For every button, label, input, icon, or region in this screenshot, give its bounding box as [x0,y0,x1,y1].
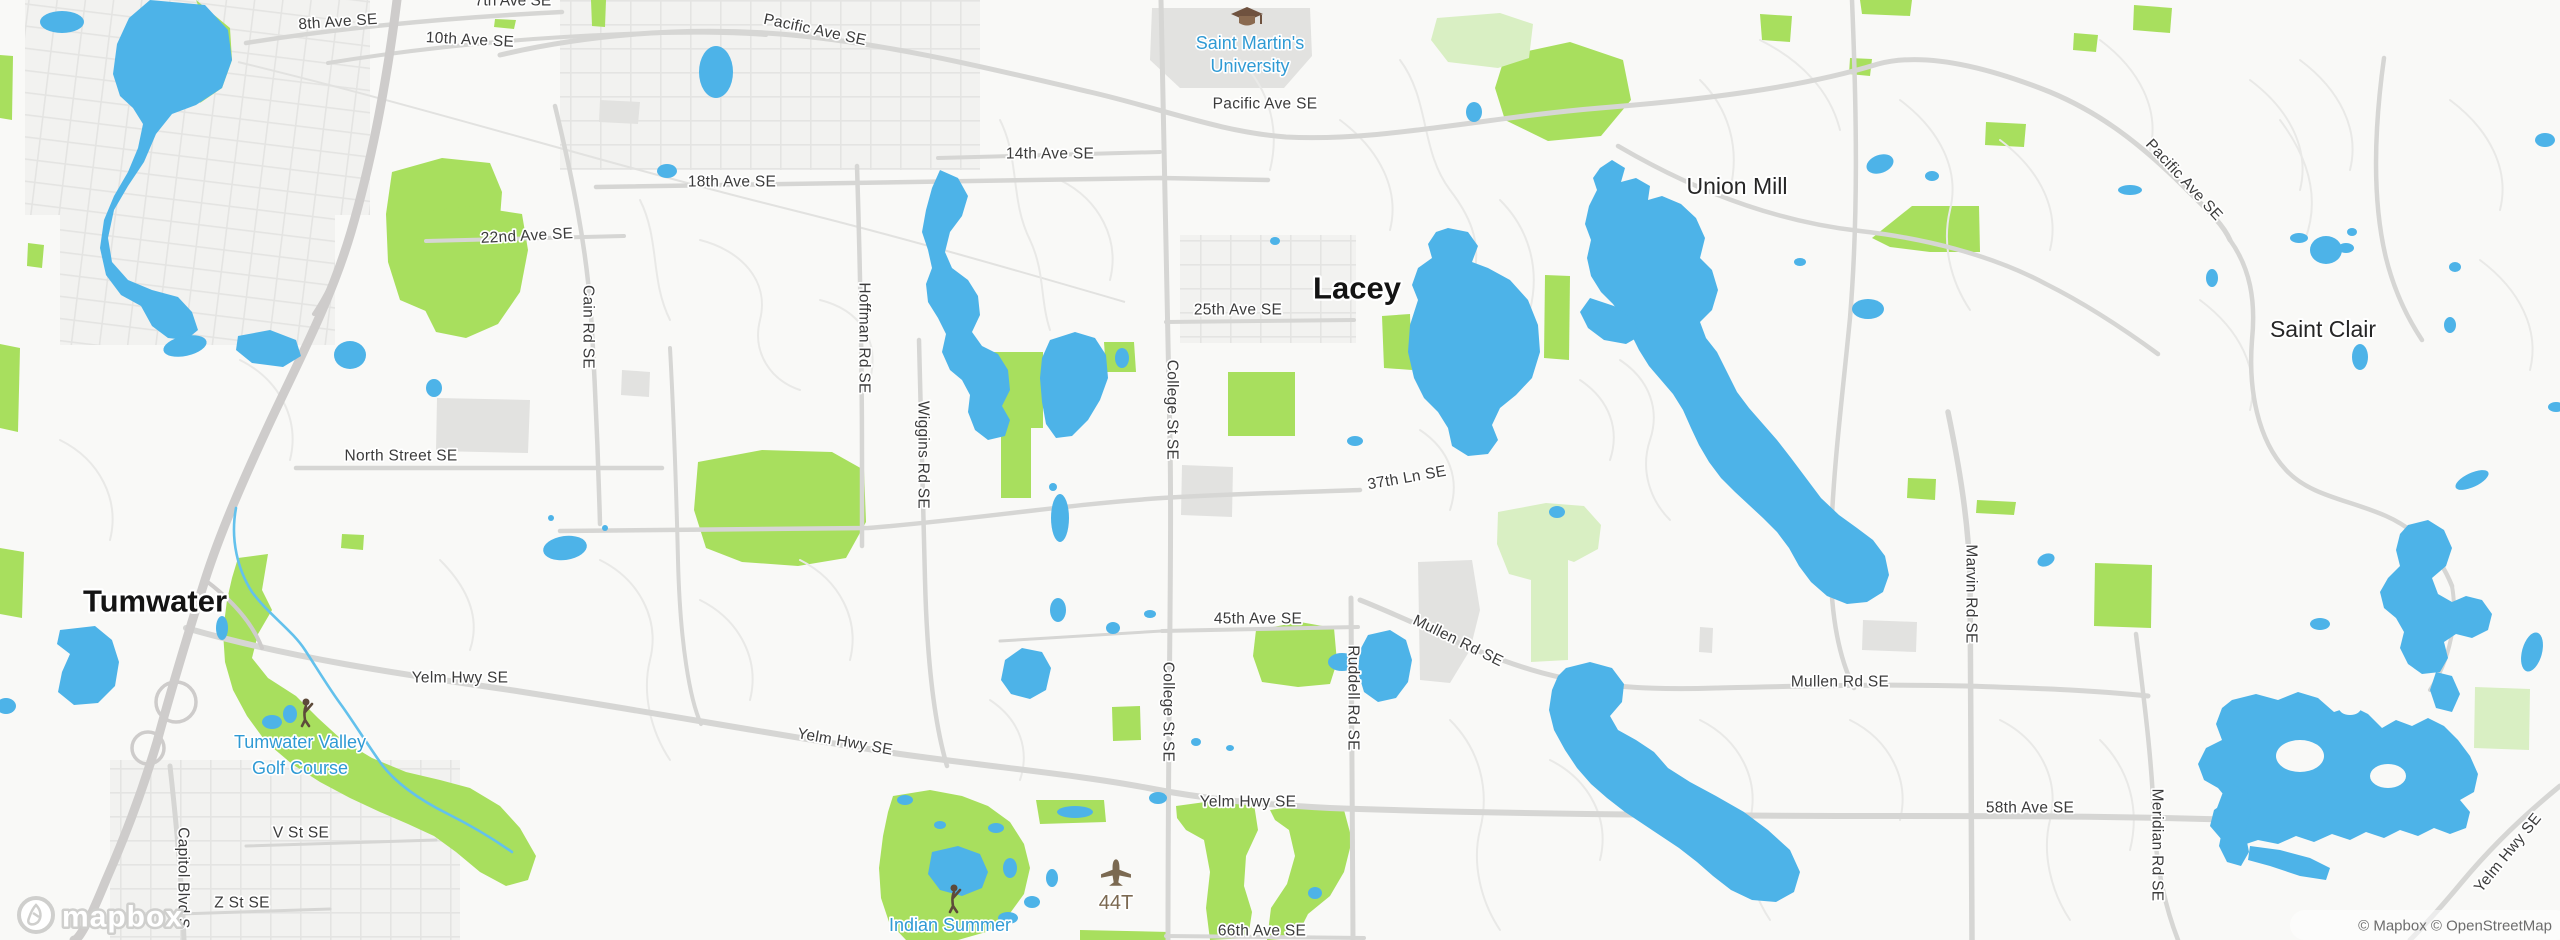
map-label-fiftyeighth-ave-se: 58th Ave SE [1986,800,2074,817]
map-label-twentyfifth-ave-se: 25th Ave SE [1194,302,1282,319]
map-label-union-mill: Union Mill [1687,173,1788,199]
map-viewport[interactable]: 7th Ave SE8th Ave SE10th Ave SEPacific A… [0,0,2560,940]
map-label-v-st-se: V St SE [273,825,329,842]
map-label-wiggins-rd-se: Wiggins Rd SE [915,401,932,509]
map-label-line: Saint Martin's [1196,33,1304,53]
map-label-north-street-se: North Street SE [344,448,457,465]
map-label-mullen-rd-se-east: Mullen Rd SE [1791,674,1889,691]
map-label-meridian-rd-se: Meridian Rd SE [2149,789,2166,902]
map-label-cain-rd-se: Cain Rd SE [580,285,597,369]
mapbox-wordmark: mapbox [62,901,183,934]
map-label-line: Tumwater Valley [234,732,366,752]
map-canvas[interactable]: 7th Ave SE8th Ave SE10th Ave SEPacific A… [0,0,2560,940]
map-label-yelm-hwy-se-west: Yelm Hwy SE [412,670,509,687]
map-label-line: University [1210,56,1289,76]
map-label-college-st-se-south: College St SE [1160,662,1177,762]
map-label-ruddell-rd-se: Ruddell Rd SE [1345,645,1362,751]
map-label-line: Golf Course [252,758,348,778]
map-label-tumwater: Tumwater [83,584,227,619]
map-label-indian-summer: Indian Summer [889,915,1011,935]
map-label-z-st-se: Z St SE [214,895,270,912]
attribution-bar[interactable]: © Mapbox © OpenStreetMap [2290,910,2560,940]
map-label-college-st-se-north: College St SE [1164,360,1181,460]
map-label-marvin-rd-se: Marvin Rd SE [1963,544,1980,643]
map-label-fourteenth-ave-se: 14th Ave SE [1006,146,1094,163]
map-label-seventh-ave-se: 7th Ave SE [475,0,551,10]
map-label-airport-44t: 44T [1099,892,1133,914]
map-label-lacey: Lacey [1313,271,1402,306]
map-label-eighteenth-ave-se: 18th Ave SE [688,174,776,191]
map-label-yelm-hwy-se-center: Yelm Hwy SE [1200,794,1297,811]
map-label-sixtysixth-ave-se: 66th Ave SE [1218,923,1306,940]
map-label-pacific-ave-se-center: Pacific Ave SE [1213,96,1318,113]
attribution-text[interactable]: © Mapbox © OpenStreetMap [2358,918,2552,935]
map-label-fortyfifth-ave-se: 45th Ave SE [1214,611,1302,628]
map-label-hoffman-rd-se: Hoffman Rd SE [856,282,873,393]
mapbox-logo[interactable]: mapbox [19,898,183,934]
map-label-saint-clair: Saint Clair [2270,316,2376,342]
